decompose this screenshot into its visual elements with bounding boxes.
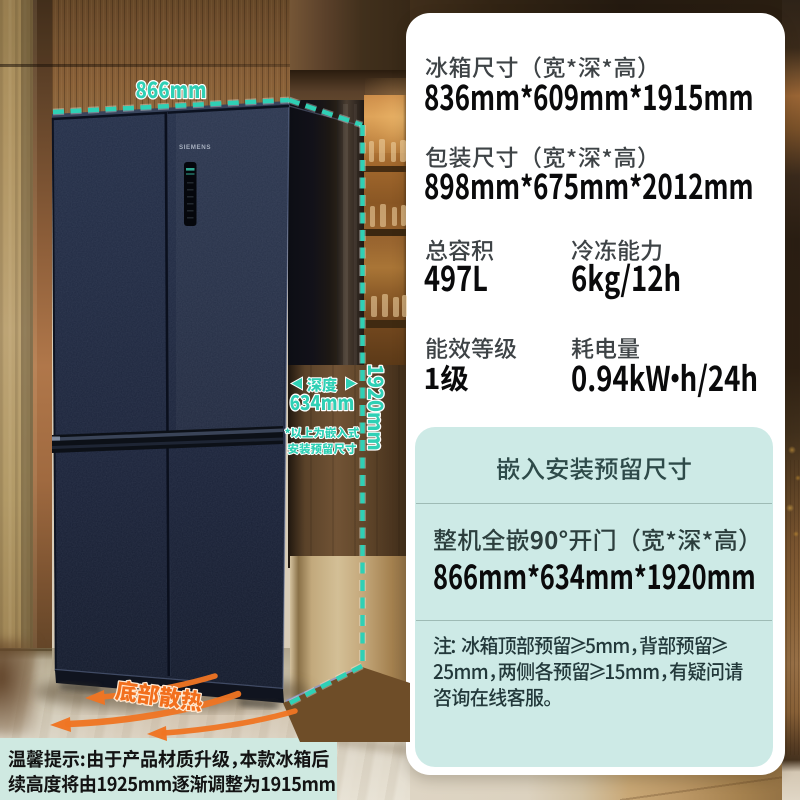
- svg-text:SIEMENS: SIEMENS: [179, 144, 211, 151]
